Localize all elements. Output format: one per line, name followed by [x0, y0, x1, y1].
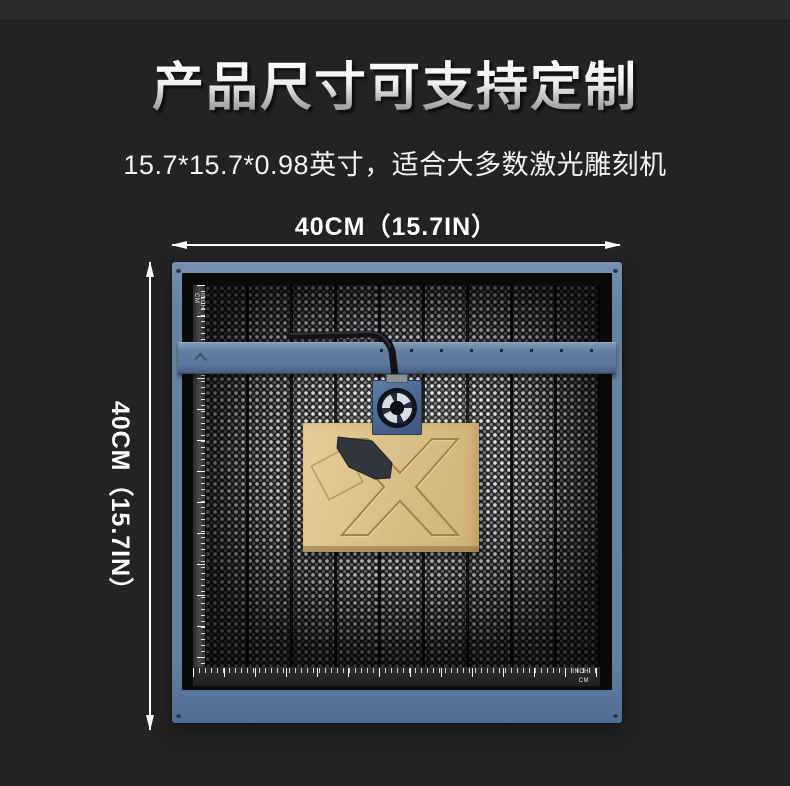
frame-screw [176, 713, 181, 718]
rail-screw-holes [380, 349, 616, 352]
height-dimension-arrow [149, 262, 151, 730]
bottom-ruler-unit-inch: INCH [572, 669, 589, 675]
frame-screw [176, 268, 181, 273]
frame-screw [613, 268, 618, 273]
product-banner: 产品尺寸可支持定制 15.7*15.7*0.98英寸，适合大多数激光雕刻机 40… [0, 0, 790, 786]
page-subtitle: 15.7*15.7*0.98英寸，适合大多数激光雕刻机 [0, 143, 790, 182]
page-title: 产品尺寸可支持定制 [0, 60, 790, 117]
laser-cutout [337, 437, 392, 479]
engraved-x [303, 423, 479, 552]
bottom-ruler: INCH CM [193, 667, 600, 686]
width-dimension-label: 40CM（15.7IN） [176, 207, 616, 243]
top-strip [0, 0, 790, 21]
fan-icon [377, 388, 417, 428]
width-dimension-arrow [172, 244, 620, 246]
laser-module [372, 380, 422, 435]
height-dimension-label: 40CM（15.7IN） [104, 401, 140, 603]
engraved-wood-board [303, 423, 479, 552]
gantry-rail [178, 342, 616, 374]
bottom-ruler-unit-cm: CM [579, 678, 589, 684]
rail-bolt [195, 353, 208, 366]
left-ruler-unit-inch: INCH [199, 293, 205, 310]
honeycomb-panel-photo: CM INCH INCH CM [172, 262, 622, 723]
frame-screw [613, 713, 618, 718]
module-bracket [386, 374, 408, 383]
